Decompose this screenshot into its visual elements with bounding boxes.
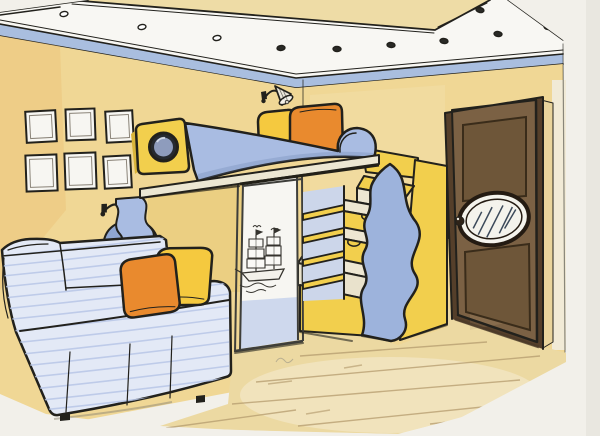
ceiling-spotlight (213, 35, 222, 41)
picture-frame (64, 152, 96, 189)
picture-frame (65, 109, 95, 141)
porthole-glass (154, 138, 173, 157)
picture-frame (103, 155, 132, 188)
ceiling-spotlight (387, 42, 395, 48)
picture-frame (25, 154, 57, 191)
ceiling-spotlight (494, 31, 503, 37)
sliding-door-lower-shade (240, 297, 298, 349)
ceiling-spotlight (440, 38, 449, 44)
picture-frame (105, 110, 134, 142)
scan-shadow-edge (586, 0, 600, 436)
sofa-pillow-orange (120, 253, 181, 318)
door-knob (455, 217, 464, 226)
wooden-door (445, 97, 553, 349)
door-knob-highlight (457, 218, 459, 220)
door-upper-panel (463, 117, 526, 201)
ceiling-spotlight (60, 11, 69, 17)
ceiling-spotlight (333, 46, 341, 51)
picture-frame (25, 110, 57, 143)
room-sketch (0, 0, 600, 436)
sketch-canvas (0, 0, 600, 436)
ceiling-spotlight (138, 24, 147, 30)
sofa-foot (196, 395, 205, 403)
ceiling-spotlight (277, 45, 285, 51)
sofa-foot (60, 413, 70, 421)
